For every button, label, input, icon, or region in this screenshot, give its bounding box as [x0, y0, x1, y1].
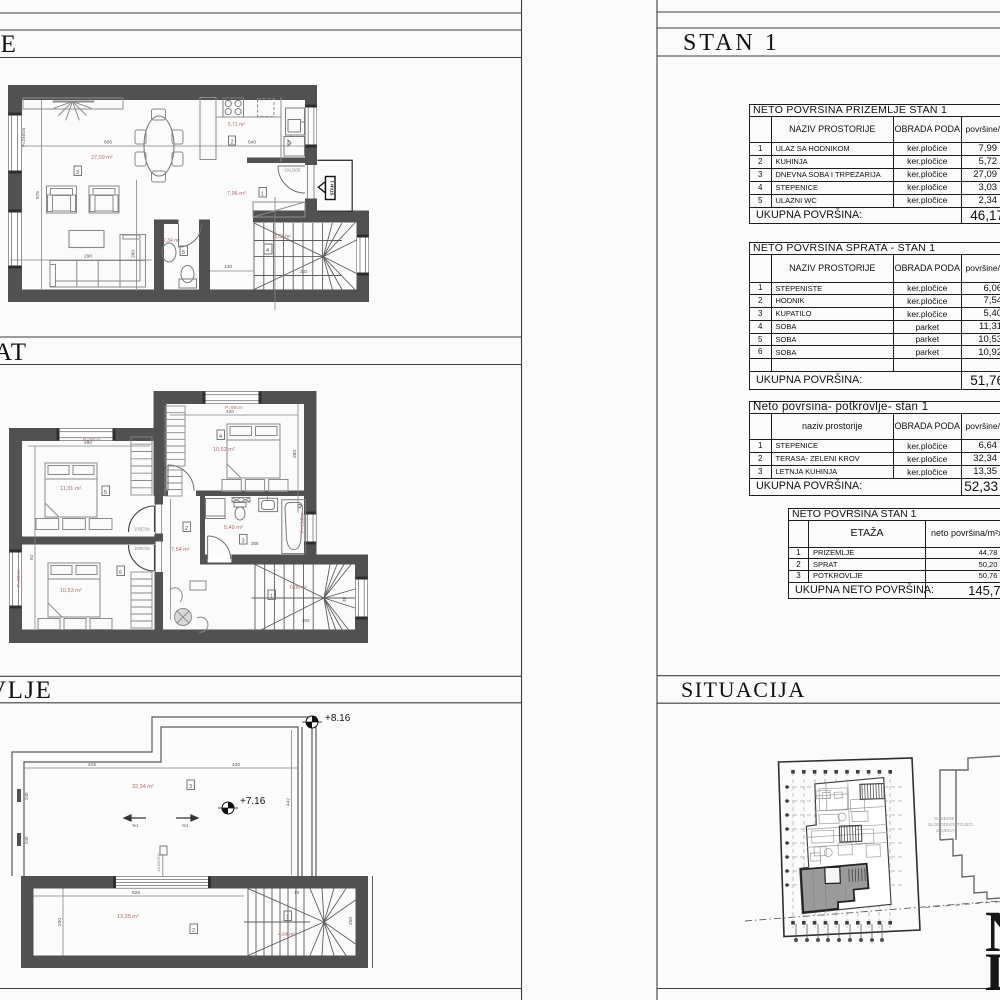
svg-text:10: 10	[294, 890, 300, 896]
svg-text:2: 2	[231, 140, 234, 146]
svg-text:2: 2	[185, 526, 188, 532]
svg-text:5: 5	[182, 250, 185, 256]
svg-text:5: 5	[104, 490, 107, 496]
svg-text:250: 250	[348, 917, 354, 925]
svg-text:SPRAT: SPRAT	[0, 339, 28, 366]
svg-text:13,35 m²: 13,35 m²	[117, 914, 139, 920]
svg-text:4: 4	[266, 248, 269, 254]
svg-text:1: 1	[270, 594, 273, 600]
svg-text:SLOBODNOSTOJEĆI: SLOBODNOSTOJEĆI	[928, 821, 973, 827]
svg-text:280: 280	[292, 450, 298, 458]
svg-text:STAN 1: STAN 1	[683, 30, 780, 56]
svg-text:1: 1	[286, 915, 289, 921]
svg-text:SITUACIJA: SITUACIJA	[681, 677, 806, 702]
svg-text:280: 280	[131, 250, 137, 258]
svg-text:200: 200	[57, 918, 63, 926]
svg-text:290: 290	[84, 254, 92, 260]
svg-text:4: 4	[219, 434, 222, 440]
svg-text:191/205: 191/205	[284, 168, 301, 173]
svg-text:10,52 m²: 10,52 m²	[213, 447, 235, 453]
svg-text:P=90cm: P=90cm	[83, 437, 101, 443]
svg-text:3: 3	[242, 539, 245, 545]
svg-text:442: 442	[286, 798, 292, 806]
svg-text:28: 28	[342, 596, 347, 602]
svg-text:430: 430	[232, 762, 240, 768]
svg-text:+7.16: +7.16	[240, 796, 266, 807]
svg-text:%1: %1	[132, 823, 139, 828]
svg-text:626: 626	[132, 890, 140, 896]
svg-text:%1: %1	[182, 823, 189, 828]
svg-text:5,49 m²: 5,49 m²	[224, 525, 243, 531]
svg-text:7,96 m²: 7,96 m²	[227, 191, 246, 197]
svg-text:140: 140	[224, 264, 232, 270]
svg-text:2: 2	[192, 928, 195, 934]
svg-text:420: 420	[226, 409, 234, 415]
svg-text:P=240cm: P=240cm	[21, 128, 26, 147]
svg-text:240: 240	[24, 792, 29, 800]
svg-text:3: 3	[189, 784, 192, 790]
svg-text:STAN 1: STAN 1	[330, 180, 335, 196]
svg-text:1200/2300: 1200/2300	[156, 852, 161, 872]
svg-text:5,71 m²: 5,71 m²	[228, 122, 245, 128]
svg-text:6: 6	[119, 570, 122, 576]
svg-text:305: 305	[251, 541, 259, 546]
svg-text:3,03 m²: 3,03 m²	[274, 234, 291, 240]
svg-text:100E/1b: 100E/1b	[134, 527, 150, 532]
svg-text:7,54 m²: 7,54 m²	[171, 547, 190, 553]
svg-text:302: 302	[302, 618, 310, 623]
svg-text:SUSEDNI: SUSEDNI	[934, 816, 954, 821]
svg-text:4,64 m²: 4,64 m²	[278, 932, 295, 938]
svg-text:6,06 m²: 6,06 m²	[290, 585, 307, 591]
svg-text:540: 540	[248, 140, 256, 146]
svg-text:415: 415	[88, 762, 96, 768]
svg-text:1: 1	[261, 192, 264, 198]
svg-text:OBJEKAT: OBJEKAT	[936, 828, 957, 833]
svg-text:92: 92	[29, 554, 35, 560]
svg-text:27,09 m²: 27,09 m²	[91, 155, 113, 161]
svg-text:32,34 m²: 32,34 m²	[132, 784, 154, 790]
svg-text:302: 302	[300, 269, 308, 274]
svg-text:2,34 m²: 2,34 m²	[163, 238, 180, 244]
svg-text:3: 3	[76, 170, 79, 176]
svg-text:D: D	[985, 942, 1000, 1000]
svg-text:10,53 m²: 10,53 m²	[60, 588, 82, 594]
svg-text:100E/1b: 100E/1b	[134, 546, 150, 551]
svg-text:P=90cm: P=90cm	[16, 569, 22, 587]
svg-text:11,31 m²: 11,31 m²	[60, 486, 81, 492]
svg-text:PRIZEMLJE: PRIZEMLJE	[0, 31, 17, 58]
svg-text:605: 605	[104, 140, 112, 146]
svg-text:P=15dkm: P=15dkm	[300, 513, 306, 533]
svg-text:240: 240	[24, 836, 29, 844]
svg-text:POTKROVLJE: POTKROVLJE	[0, 677, 52, 704]
svg-text:+8.16: +8.16	[325, 713, 351, 724]
svg-text:575: 575	[35, 191, 41, 199]
